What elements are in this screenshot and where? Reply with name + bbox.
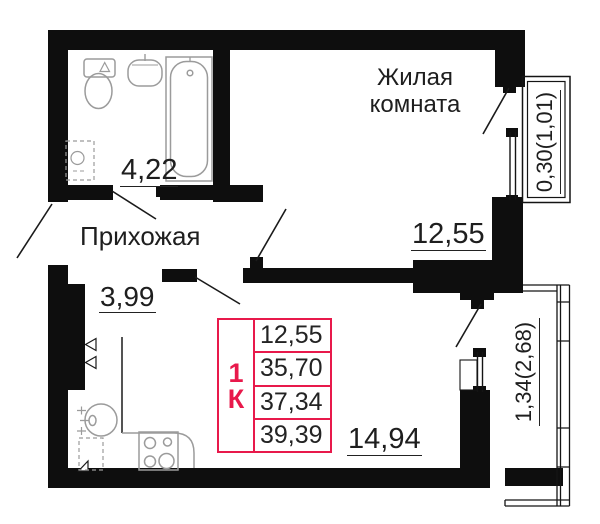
kitchen-fixtures <box>77 404 194 470</box>
bathroom-door-swing <box>112 191 156 219</box>
area-value-row: 12,55 <box>255 320 330 351</box>
apartment-type-label: 1К <box>228 360 245 412</box>
bathroom-area-dim: 4,22 <box>120 155 178 187</box>
floor-plan: Жилая комната Прихожая 4,22 3,99 12,55 1… <box>0 0 600 524</box>
apartment-area-card: 1К 12,55 35,70 37,34 39,39 <box>217 318 332 453</box>
vent-triangle-icon <box>86 357 97 369</box>
living-room-area-dim: 12,55 <box>411 219 486 251</box>
apartment-type-cell: 1К <box>219 320 255 451</box>
stove-icon <box>139 432 178 470</box>
area-values: 12,55 35,70 37,34 39,39 <box>255 320 330 451</box>
area-value-row: 37,34 <box>255 385 330 418</box>
balcony-top-area-dim: 0,30(1,01) <box>533 90 561 194</box>
windowsill <box>460 360 477 390</box>
washing-machine-icon <box>66 141 94 180</box>
kitchen-living-area-dim: 14,94 <box>347 424 422 456</box>
hallway-label: Прихожая <box>80 223 200 250</box>
area-value-row: 39,39 <box>255 418 330 451</box>
living-room-door-swing <box>256 209 286 261</box>
entrance-door-swing <box>17 204 52 258</box>
kitchen-sink-icon <box>77 404 117 436</box>
balcony-bottom-door-swing <box>456 304 481 347</box>
kitchen-counter <box>122 433 194 468</box>
fridge-placeholder <box>79 438 103 470</box>
area-value-row: 35,70 <box>255 351 330 384</box>
balcony-bottom-area-dim: 1,34(2,68) <box>512 318 540 426</box>
kitchen-door-swing <box>195 277 240 304</box>
balcony-top-door-swing <box>483 88 509 134</box>
toilet-icon <box>84 59 115 109</box>
hallway-area-dim: 3,99 <box>99 282 156 313</box>
sink-icon <box>128 54 162 86</box>
vent-triangle-icon <box>86 339 97 351</box>
living-room-label: Жилая комната <box>355 64 475 118</box>
